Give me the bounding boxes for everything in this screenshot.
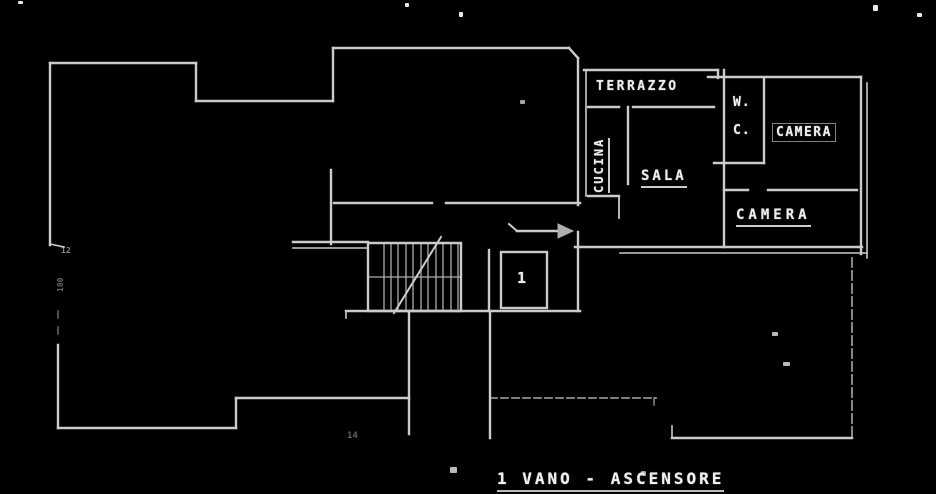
scan-speck [520, 100, 525, 104]
entrance-arrow [509, 224, 573, 238]
floor-plan: TERRAZZO CUCINA SALA W. C. CAMERA CAMERA… [0, 0, 936, 494]
scan-speck [641, 471, 646, 476]
scan-speck [917, 13, 922, 17]
scan-speck [783, 362, 790, 366]
room-label-camera-top: CAMERA [772, 123, 836, 142]
elevator-shaft [346, 250, 580, 318]
dimension-mark: 180 [57, 278, 65, 292]
staircase [368, 237, 461, 313]
room-label-cucina: CUCINA [593, 138, 610, 193]
room-label-sala: SALA [641, 169, 687, 188]
scan-speck [873, 5, 878, 11]
room-label-wc-line2: C. [733, 124, 751, 137]
floor-plan-walls [0, 0, 936, 494]
scan-speck [18, 1, 23, 4]
room-label-camera-bottom: CAMERA [736, 208, 811, 227]
stair-treads [368, 244, 461, 309]
elevator-number-label: 1 [517, 271, 526, 286]
scan-speck [405, 3, 409, 7]
scan-speck [450, 467, 457, 473]
plan-caption: 1 VANO - ASCENSORE [497, 469, 724, 492]
dimension-mark: 14 [347, 432, 358, 441]
scan-speck [772, 332, 778, 336]
dimension-mark: 12 [61, 247, 71, 255]
stair-direction-line [394, 237, 441, 313]
bottom-right-room-walls [672, 258, 852, 438]
room-label-wc-line1: W. [733, 96, 751, 109]
scan-speck [459, 12, 463, 17]
lower-partition-walls [409, 312, 656, 438]
room-label-terrazzo: TERRAZZO [596, 80, 679, 93]
corridor-walls [293, 170, 580, 248]
